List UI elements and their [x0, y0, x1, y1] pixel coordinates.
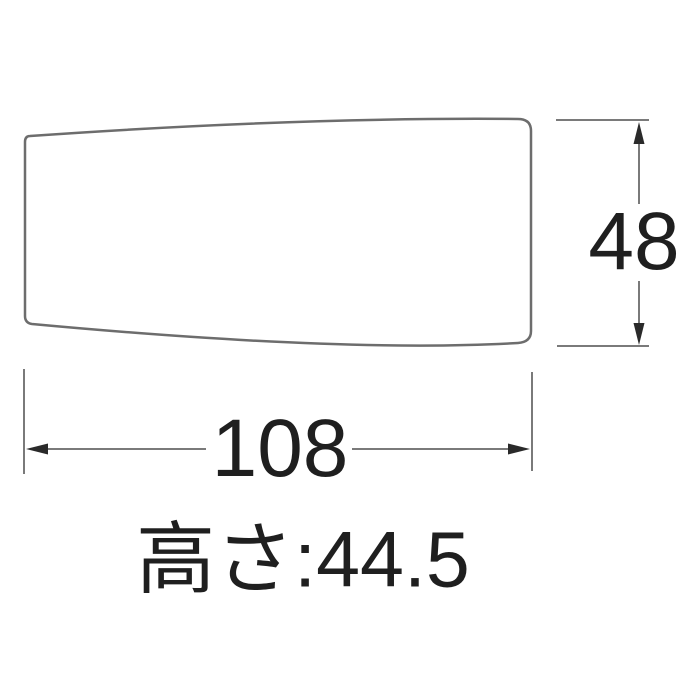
width-dimension-label: 108 [212, 408, 349, 490]
part-outline [25, 119, 531, 346]
height-dimension-label: 48 [588, 201, 679, 283]
height-arrow-up-icon [634, 122, 645, 144]
width-arrow-left-icon [26, 444, 48, 455]
width-arrow-right-icon [508, 444, 530, 455]
dimension-diagram: 48 108 高さ:44.5 [0, 0, 700, 700]
overall-height-caption: 高さ:44.5 [136, 520, 470, 599]
height-arrow-down-icon [634, 323, 645, 345]
